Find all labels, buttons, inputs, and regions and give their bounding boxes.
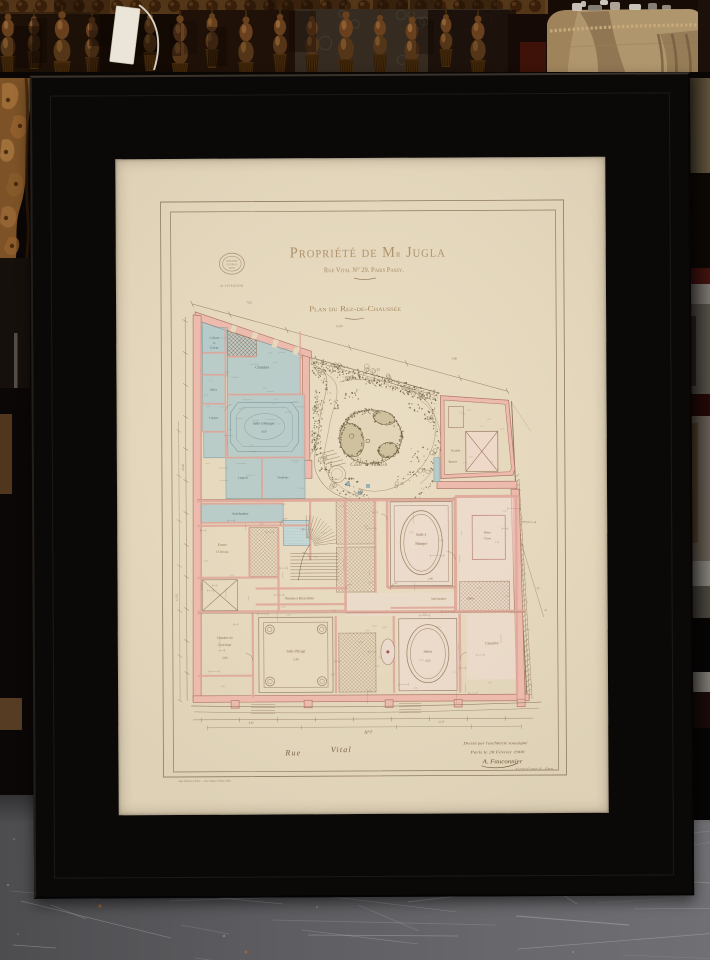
svg-text:Salon: Salon [424, 650, 433, 654]
svg-text:3.10: 3.10 [372, 546, 377, 549]
svg-text:8.45: 8.45 [249, 722, 255, 725]
svg-text:4e LIVRAISON: 4e LIVRAISON [220, 284, 244, 288]
svg-text:5.40: 5.40 [293, 657, 299, 661]
svg-text:6.05: 6.05 [281, 503, 286, 506]
svg-text:Manger: Manger [415, 542, 428, 546]
svg-text:Chambre: Chambre [485, 641, 499, 645]
svg-text:Vestibule: Vestibule [277, 475, 289, 479]
svg-text:Office: Office [210, 388, 218, 392]
svg-text:9.80: 9.80 [452, 356, 458, 360]
svg-text:Cour & Jardin: Cour & Jardin [350, 463, 387, 468]
svg-text:Ecurie: Ecurie [218, 543, 227, 547]
svg-text:3.65: 3.65 [281, 606, 286, 609]
svg-text:31.: 31. [537, 586, 541, 590]
svg-text:14.30: 14.30 [336, 324, 343, 328]
svg-text:Imp. Monrocq Paris — Rue Suger: Imp. Monrocq Paris — Rue Suger 3, Paris … [179, 779, 231, 784]
svg-text:Propriété de Mr Jugla: Propriété de Mr Jugla [290, 245, 446, 262]
svg-text:2.90: 2.90 [428, 578, 434, 581]
svg-text:6.05: 6.05 [375, 665, 380, 668]
svg-text:3.10: 3.10 [286, 614, 291, 617]
svg-text:Plan du Rez-de-Chaussée: Plan du Rez-de-Chaussée [309, 304, 401, 313]
svg-text:Office: Office [467, 596, 475, 600]
svg-text:3.65: 3.65 [330, 673, 335, 676]
svg-text:Chambre: Chambre [255, 365, 269, 369]
svg-text:25.40: 25.40 [181, 464, 185, 471]
svg-text:0.95: 0.95 [314, 556, 319, 559]
svg-text:Salle à: Salle à [416, 533, 427, 537]
svg-text:Water: Water [484, 530, 491, 534]
svg-text:LIBRAIRIE: LIBRAIRIE [226, 260, 238, 263]
svg-text:Concierge: Concierge [218, 643, 232, 647]
svg-text:Cabinet: Cabinet [210, 336, 220, 340]
svg-text:4.20: 4.20 [321, 531, 326, 534]
svg-text:2.80: 2.80 [222, 656, 228, 660]
svg-text:PARIS: PARIS [229, 267, 236, 270]
svg-text:Antichambre: Antichambre [232, 512, 249, 516]
svg-text:4.60: 4.60 [261, 429, 267, 433]
svg-text:Closet: Closet [484, 537, 491, 540]
svg-text:Remise à Bicyclettes: Remise à Bicyclettes [285, 596, 314, 600]
svg-text:Rue Vital N° 29. Paris Passy.: Rue Vital N° 29. Paris Passy. [324, 266, 404, 274]
svg-text:1.40: 1.40 [365, 629, 370, 632]
svg-text:Antichambre: Antichambre [431, 597, 447, 601]
svg-text:Dressé par l'architecte soussi: Dressé par l'architecte soussigné [462, 741, 528, 745]
svg-text:6.05: 6.05 [382, 626, 387, 629]
svg-text:7.05: 7.05 [246, 301, 252, 305]
svg-text:Paris le 28 Février 1900: Paris le 28 Février 1900 [469, 750, 525, 754]
svg-text:4.25: 4.25 [425, 659, 431, 663]
svg-text:11.25: 11.25 [438, 721, 445, 724]
svg-text:Chambre du: Chambre du [217, 636, 233, 640]
svg-text:3 Chevaux: 3 Chevaux [216, 550, 229, 554]
svg-text:Ecurie: Ecurie [451, 448, 460, 452]
svg-text:Gravé par E. Dru: Gravé par E. Dru [515, 767, 554, 770]
svg-text:Lingerie: Lingerie [238, 476, 249, 480]
svg-text:Cuisine: Cuisine [209, 416, 219, 420]
svg-text:3.10: 3.10 [316, 537, 321, 540]
svg-text:Vital: Vital [331, 745, 352, 754]
svg-text:Toilette: Toilette [210, 346, 220, 350]
svg-text:m: m [545, 608, 548, 612]
svg-text:Salle d'Etage: Salle d'Etage [286, 649, 305, 653]
svg-text:2.70: 2.70 [204, 560, 209, 563]
svg-text:A. Fauconnier: A. Fauconnier [481, 759, 523, 765]
svg-text:N°7: N°7 [363, 731, 372, 736]
svg-text:4.20: 4.20 [221, 685, 226, 688]
svg-text:12.15: 12.15 [175, 594, 179, 601]
svg-text:1.40: 1.40 [372, 625, 377, 628]
svg-text:CENTRALE: CENTRALE [226, 263, 238, 266]
svg-text:Rue: Rue [284, 748, 301, 757]
svg-text:Salle à Manger: Salle à Manger [253, 421, 276, 425]
svg-text:3.10: 3.10 [488, 681, 493, 684]
